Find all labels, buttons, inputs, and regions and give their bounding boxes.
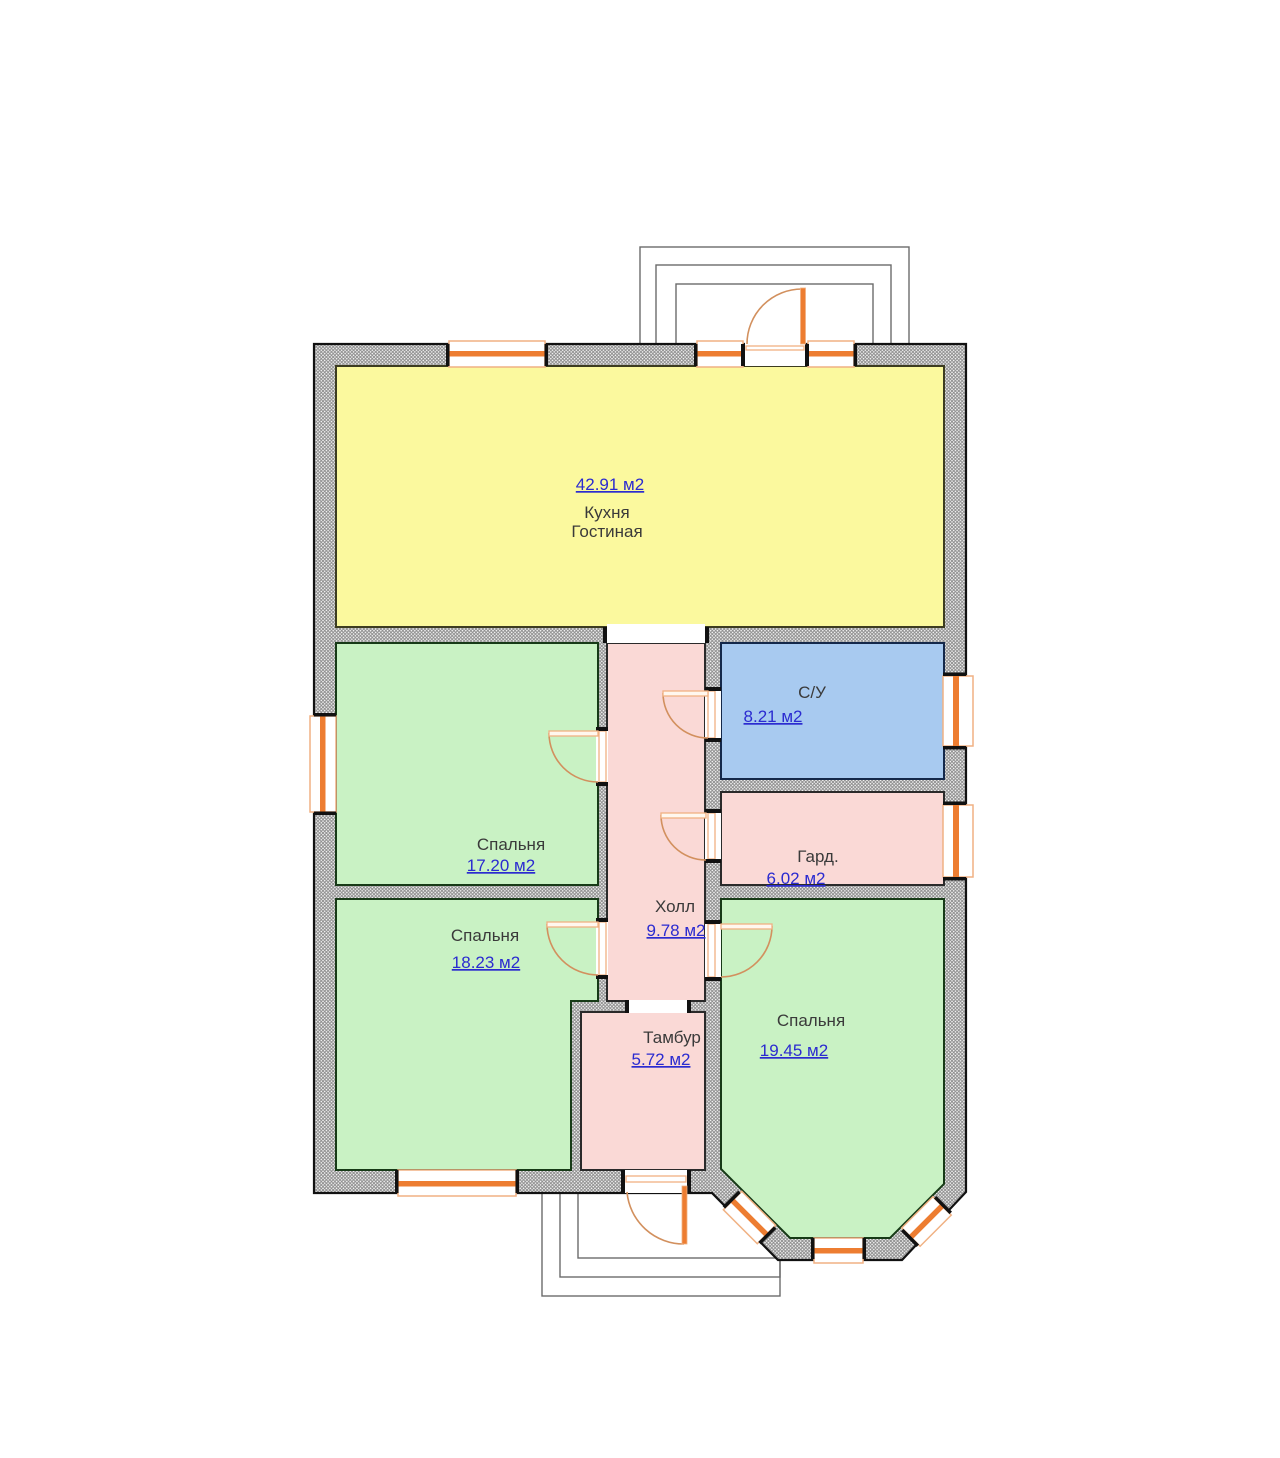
svg-text:Спальня: Спальня [477,835,545,854]
svg-text:Кухня: Кухня [584,503,630,522]
svg-text:19.45 м2: 19.45 м2 [760,1041,828,1060]
svg-text:Спальня: Спальня [451,926,519,945]
svg-text:Гостиная: Гостиная [571,522,642,541]
svg-text:Тамбур: Тамбур [643,1028,701,1047]
svg-text:6.02 м2: 6.02 м2 [767,869,826,888]
svg-text:5.72 м2: 5.72 м2 [632,1050,691,1069]
svg-text:Гард.: Гард. [797,847,838,866]
svg-text:18.23 м2: 18.23 м2 [452,953,520,972]
svg-text:9.78 м2: 9.78 м2 [647,921,706,940]
svg-text:17.20 м2: 17.20 м2 [467,856,535,875]
svg-text:Спальня: Спальня [777,1011,845,1030]
svg-text:С/У: С/У [798,683,826,702]
svg-text:Холл: Холл [655,897,695,916]
svg-text:42.91 м2: 42.91 м2 [576,475,644,494]
svg-text:8.21 м2: 8.21 м2 [744,707,803,726]
